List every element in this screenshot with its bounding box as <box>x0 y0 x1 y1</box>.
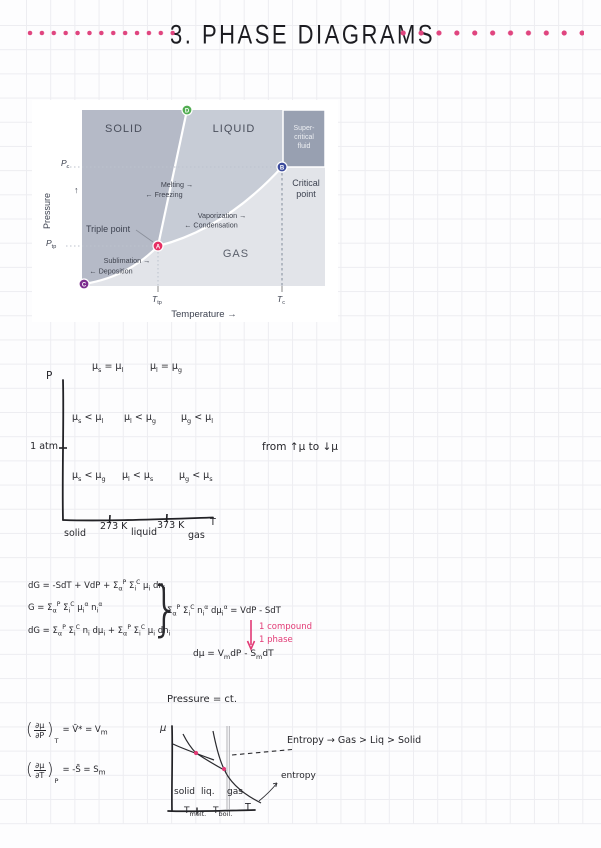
derivative-result: = -S̄ = Sm <box>62 765 105 777</box>
open-paren: ( <box>26 722 33 739</box>
close-paren: ) <box>47 722 54 739</box>
phase-label-gas: gas <box>227 787 243 797</box>
fraction: ∂μ ∂P <box>34 721 46 740</box>
mu-highp-2: μl < μg <box>124 413 156 425</box>
mu-axis-label: μ <box>160 723 166 735</box>
point-b-letter: B <box>280 165 285 171</box>
mu-lowp-2: μl < μs <box>122 471 153 483</box>
melting-intersection-dot <box>194 751 198 755</box>
bottom-graph-title: Pressure = ct. <box>167 694 237 706</box>
mu-lowp-1: μs < μg <box>72 471 106 483</box>
condition-one-compound: 1 compound <box>259 623 312 632</box>
t-axis-label: T <box>245 803 251 814</box>
derivative-dmu-dp: ( ∂μ ∂P ) T = V̄* = Vm <box>26 721 108 740</box>
constant-subscript: P <box>55 777 59 785</box>
fraction-numerator: ∂μ <box>34 721 46 731</box>
mu-lowp-3: μg < μs <box>179 471 213 483</box>
supercritical-label-line1: Super- <box>293 125 315 132</box>
liquid-mu-line <box>183 734 226 771</box>
equation-gibbs-duhem: ΣαP ΣiC niα dμiα = VdP - SdT <box>167 605 281 618</box>
temperature-axis-label: Temperature → <box>171 309 236 320</box>
vaporization-label: Vaporization → <box>198 211 247 220</box>
mu-vs-t-graph <box>158 713 323 823</box>
point-c-letter: C <box>82 282 87 288</box>
fraction-denominator: ∂T <box>35 771 44 780</box>
supercritical-label-line2: critical <box>294 134 314 141</box>
fraction-numerator: ∂μ <box>34 761 46 771</box>
mu-xlabel-liquid: liquid <box>131 528 157 539</box>
mu-equal-2: μl = μg <box>150 362 182 374</box>
tmelt-label: Tmelt. <box>184 806 206 818</box>
critical-point-label-line2: point <box>296 189 316 199</box>
entropy-pointer-curve <box>259 783 277 801</box>
equation-dg-total: dG = -SdT + VdP + ΣαP ΣiC μi dni <box>28 580 166 593</box>
tc-axis-label: Tc <box>277 294 285 306</box>
ttp-axis-label: Ttp <box>152 294 162 306</box>
mu-trend-note: from ↑μ to ↓μ <box>262 441 338 453</box>
critical-point-label-line1: Critical <box>292 178 320 188</box>
condition-one-phase: 1 phase <box>259 636 293 645</box>
solid-mu-line <box>173 744 214 760</box>
point-a-letter: A <box>156 244 161 250</box>
gas-region-label: GAS <box>223 248 249 260</box>
ptp-axis-label: Ptp <box>46 238 56 250</box>
pressure-axis-arrow: ↑ <box>74 185 79 195</box>
mu-graph-x-axis <box>63 518 213 521</box>
constant-subscript: T <box>55 737 59 745</box>
mu-equal-1: μs = μl <box>92 362 123 374</box>
entropy-order-note: Entropy → Gas > Liq > Solid <box>287 736 421 747</box>
title-dots-right <box>400 29 584 37</box>
condensation-label: ← Condensation <box>184 221 238 230</box>
phase-label-liq: liq. <box>201 787 215 797</box>
mu-t-x-axis <box>168 810 255 811</box>
pink-down-arrow <box>246 619 256 653</box>
melting-label: Melting → <box>161 180 193 189</box>
one-atm-label: 1 atm <box>26 442 58 453</box>
mu-xlabel-gas: gas <box>188 531 205 542</box>
mu-graph-y-axis <box>63 380 64 520</box>
pc-axis-label: Pc <box>61 158 70 170</box>
deposition-label: ← Deposition <box>89 267 132 276</box>
mu-highp-3: μg < μl <box>181 413 213 425</box>
fraction: ∂μ ∂T <box>34 761 46 780</box>
equation-dmu: dμ = VmdP - SmdT <box>193 650 274 661</box>
open-paren: ( <box>26 762 33 779</box>
entropy-pointer-label: entropy <box>281 771 316 781</box>
phase-diagram-figure: SOLID LIQUID GAS Super- critical fluid C… <box>40 96 340 331</box>
sublimation-label: Sublimation → <box>104 256 151 265</box>
derivative-result: = V̄* = Vm <box>63 725 108 737</box>
boiling-intersection-dot <box>222 767 226 771</box>
mu-xlabel-273k: 273 K <box>100 522 127 533</box>
mu-xlabel-373k: 373 K <box>157 521 184 532</box>
pressure-axis-label: Pressure <box>42 193 52 229</box>
derivative-dmu-dt: ( ∂μ ∂T ) P = -S̄ = Sm <box>26 761 106 780</box>
mu-graph-axes <box>50 372 230 530</box>
freezing-label: ← Freezing <box>145 190 182 199</box>
triple-point-label: Triple point <box>86 224 131 234</box>
mu-xlabel-solid: solid <box>64 529 86 540</box>
fraction-denominator: ∂P <box>35 731 44 740</box>
supercritical-label-line3: fluid <box>298 143 311 150</box>
title-dots-left <box>27 29 176 37</box>
mu-t-axis-label: T <box>210 518 216 529</box>
metastable-dashed-line <box>232 750 292 756</box>
page-title: 3. PHASE DIAGRAMS <box>170 19 435 51</box>
equation-g-sum: G = ΣαP ΣiC μiα niα <box>28 602 102 615</box>
point-d-letter: D <box>185 108 190 114</box>
tboil-label: Tboil. <box>213 806 232 818</box>
phase-label-solid: solid <box>174 787 195 797</box>
solid-region-label: SOLID <box>105 123 143 135</box>
mu-highp-1: μs < μl <box>72 413 103 425</box>
close-paren: ) <box>47 762 54 779</box>
liquid-region-label: LIQUID <box>213 123 256 135</box>
notes-page: { "colors": { "accent_pink": "#e0457f", … <box>0 0 601 848</box>
